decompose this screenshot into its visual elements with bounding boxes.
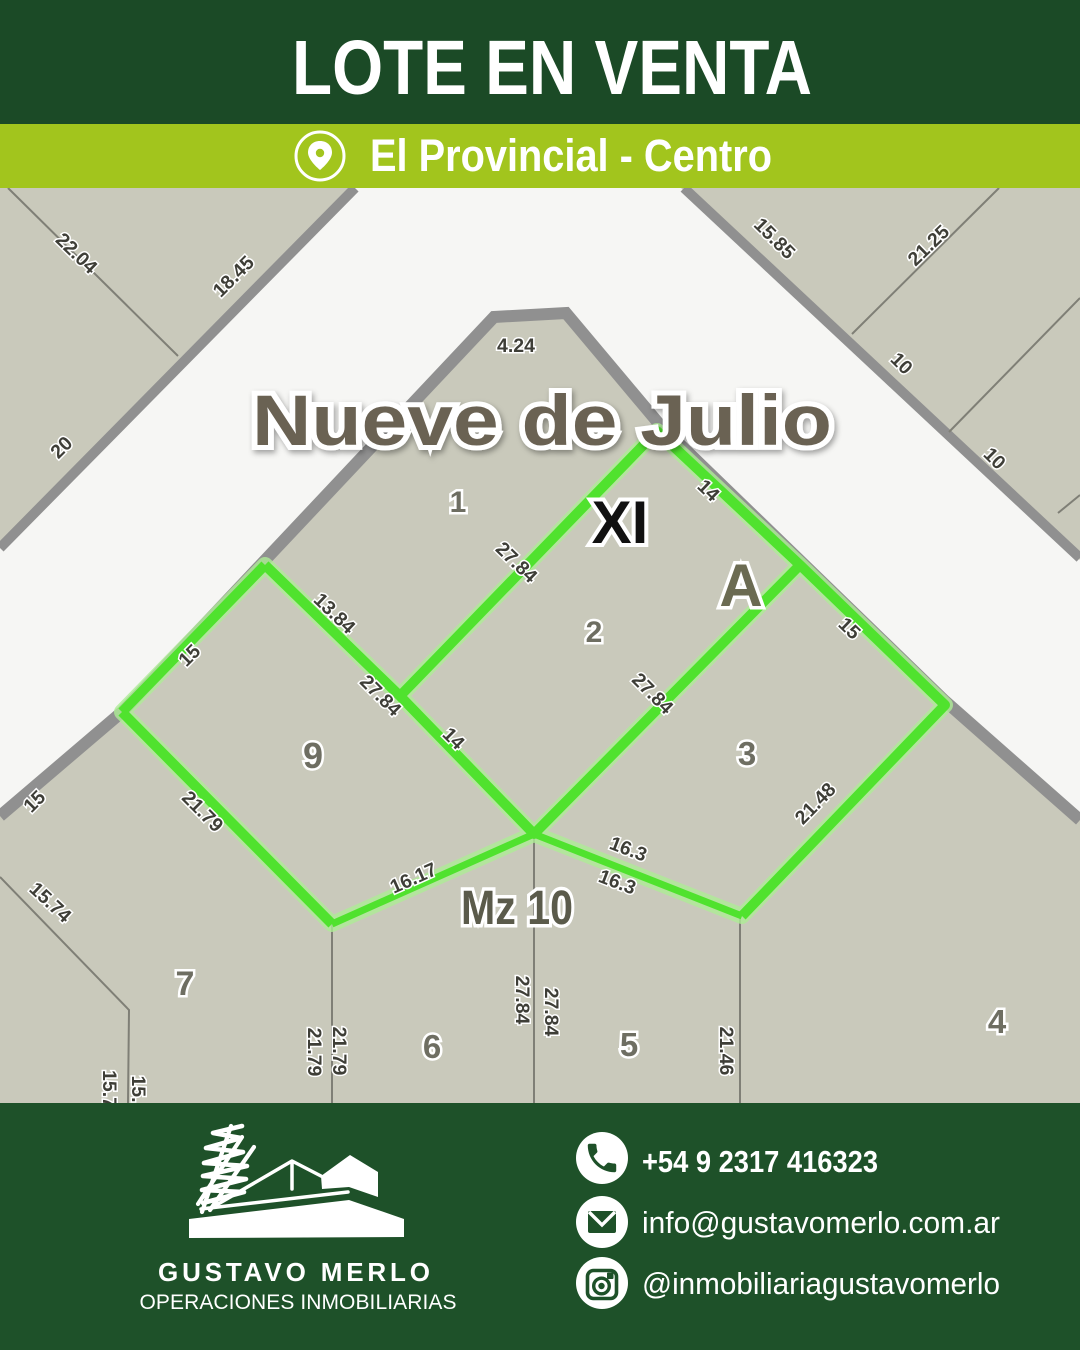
svg-text:15.: 15. — [127, 1075, 149, 1102]
svg-text:9: 9 — [303, 735, 323, 776]
svg-text:Mz 10: Mz 10 — [461, 882, 573, 935]
svg-text:7: 7 — [176, 965, 195, 1003]
svg-text:A: A — [719, 552, 762, 619]
svg-text:21.79: 21.79 — [328, 1027, 350, 1076]
svg-text:@inmobiliariagustavomerlo: @inmobiliariagustavomerlo — [642, 1266, 1000, 1301]
svg-text:Nueve de Julio: Nueve de Julio — [252, 382, 832, 461]
svg-text:1: 1 — [450, 486, 467, 519]
svg-text:El Provincial - Centro: El Provincial - Centro — [370, 130, 772, 181]
svg-text:21.46: 21.46 — [715, 1027, 737, 1076]
svg-text:LOTE EN VENTA: LOTE EN VENTA — [292, 25, 812, 111]
svg-text:4: 4 — [988, 1003, 1007, 1040]
svg-text:OPERACIONES INMOBILIARIAS: OPERACIONES INMOBILIARIAS — [140, 1291, 457, 1314]
svg-text:XI: XI — [592, 489, 649, 556]
svg-text:2: 2 — [586, 616, 603, 649]
svg-text:info@gustavomerlo.com.ar: info@gustavomerlo.com.ar — [642, 1205, 1000, 1240]
svg-text:GUSTAVO MERLO: GUSTAVO MERLO — [158, 1257, 430, 1287]
svg-text:3: 3 — [738, 735, 756, 772]
svg-text:+54 9 2317 416323: +54 9 2317 416323 — [642, 1144, 878, 1179]
svg-text:27.84: 27.84 — [540, 988, 562, 1037]
svg-text:6: 6 — [423, 1028, 441, 1065]
svg-text:5: 5 — [620, 1026, 638, 1063]
svg-text:27.84: 27.84 — [511, 976, 533, 1025]
svg-text:4.24: 4.24 — [497, 335, 535, 357]
svg-text:21.79: 21.79 — [303, 1028, 325, 1077]
svg-text:15.7: 15.7 — [98, 1070, 120, 1108]
